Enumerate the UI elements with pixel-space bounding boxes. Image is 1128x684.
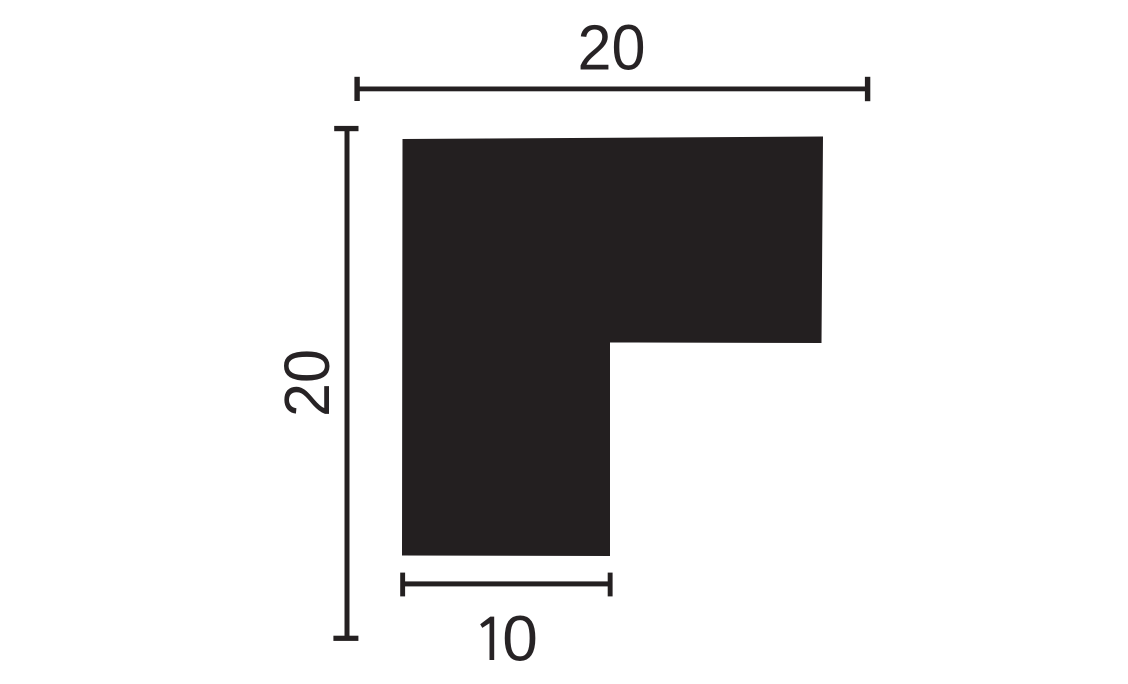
svg-text:20: 20 xyxy=(271,349,343,417)
svg-text:20: 20 xyxy=(578,12,646,84)
svg-text:0: 0 xyxy=(502,603,538,675)
